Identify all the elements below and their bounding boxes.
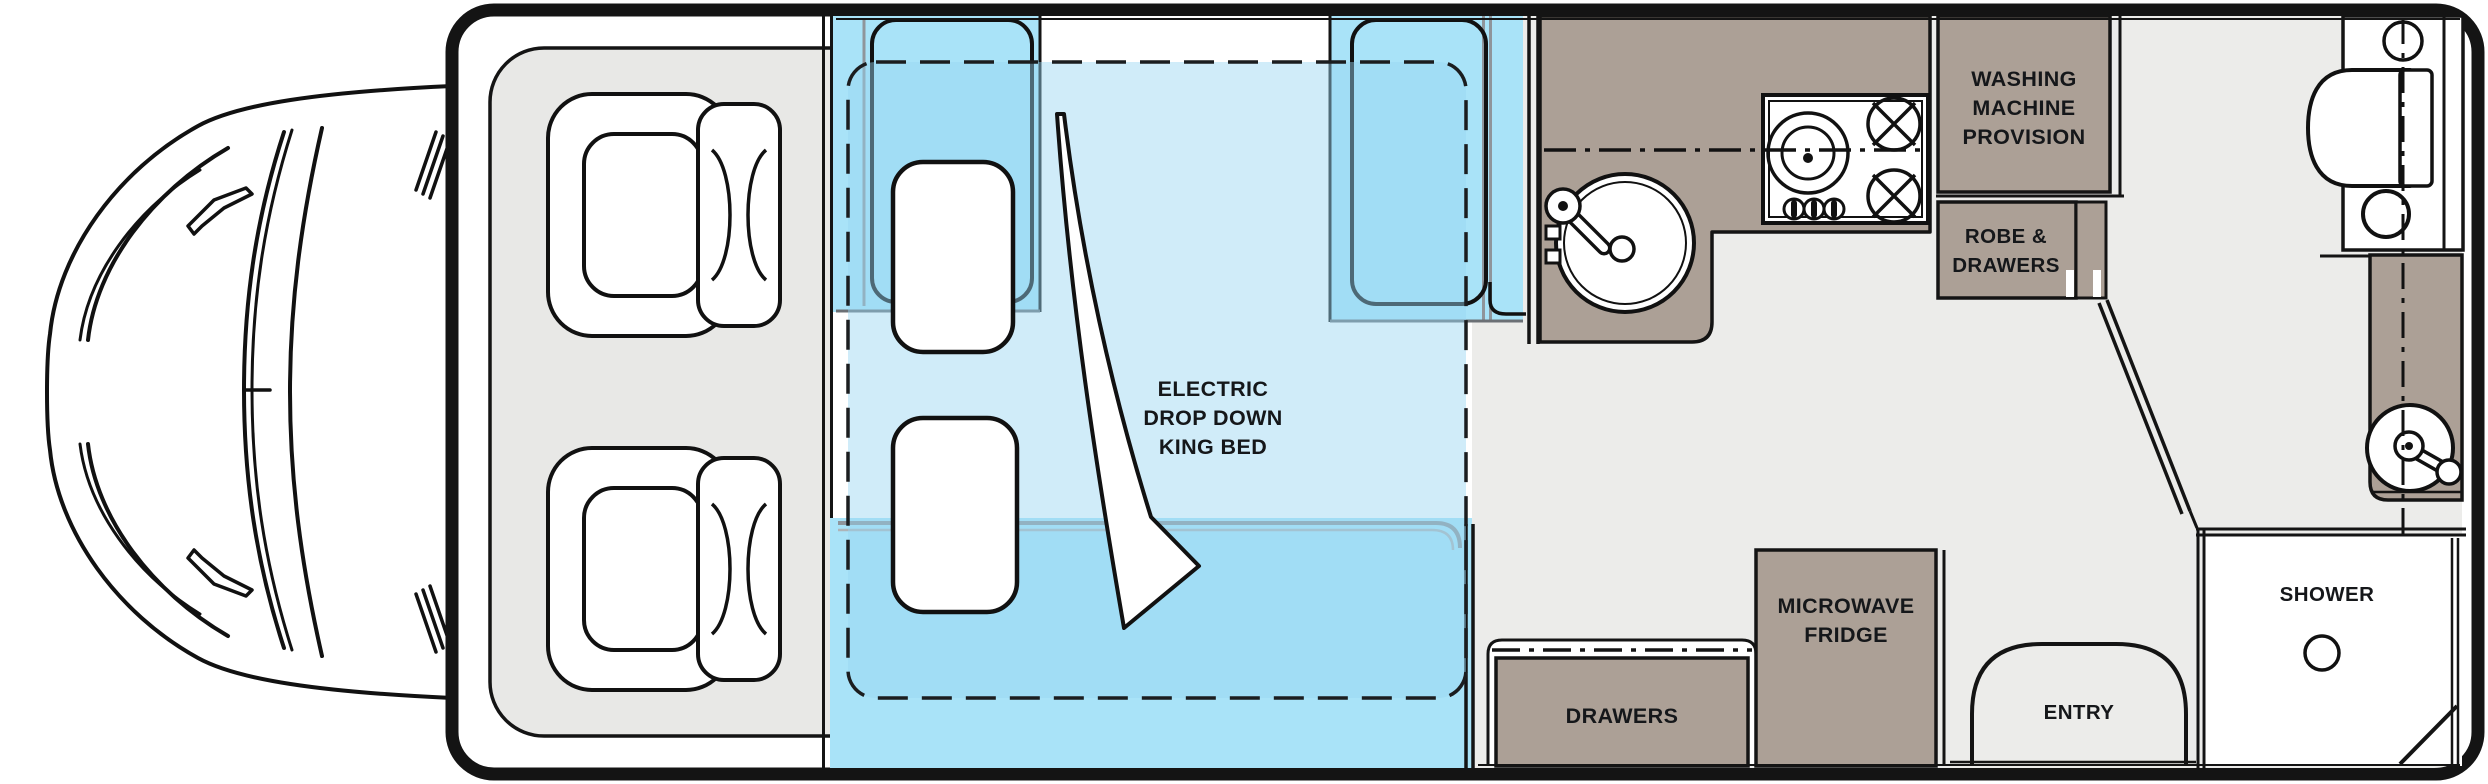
bed-label-line2: DROP DOWN	[1143, 406, 1282, 430]
shower-drain-icon	[2305, 636, 2339, 670]
bed-label-line1: ELECTRIC	[1158, 377, 1269, 401]
door-track-slot	[2066, 270, 2074, 297]
washing-label-line2: MACHINE	[1972, 96, 2075, 120]
robe-label-line2: DRAWERS	[1952, 254, 2060, 277]
vanity-unit	[2367, 255, 2462, 500]
toilet-bowl-icon	[2308, 70, 2410, 186]
microwave-label-line1: MICROWAVE	[1778, 594, 1915, 618]
bed-label-line3: KING BED	[1159, 435, 1267, 459]
tap-valve-icon	[1546, 250, 1560, 263]
floorplan-canvas: ELECTRIC DROP DOWN KING BED	[0, 0, 2488, 784]
door-track-slot	[2093, 270, 2101, 297]
robe-label-line1: ROBE &	[1965, 225, 2047, 248]
cooktop-knobs	[1784, 199, 1844, 219]
vanity-plug-icon	[2437, 460, 2461, 484]
cooktop	[1763, 95, 1928, 223]
table-front	[893, 162, 1013, 352]
entry-label: ENTRY	[2044, 701, 2115, 724]
microwave-fridge-cabinet	[1756, 550, 1944, 766]
toilet-cistern-icon	[2400, 70, 2432, 186]
sink-plug-icon	[1610, 237, 1634, 261]
microwave-label-line2: FRIDGE	[1804, 623, 1888, 647]
floorplan-svg: ELECTRIC DROP DOWN KING BED	[0, 0, 2488, 784]
driver-seat	[548, 94, 780, 336]
robe-cabinet	[1938, 202, 2106, 298]
washing-machine-label: WASHING MACHINE PROVISION	[1962, 67, 2085, 149]
drawers-cabinet	[1488, 640, 1756, 766]
shower-room	[2196, 529, 2466, 768]
passenger-seat	[548, 448, 780, 690]
washing-label-line3: PROVISION	[1962, 125, 2085, 149]
bed-label: ELECTRIC DROP DOWN KING BED	[1143, 377, 1282, 459]
washing-label-line1: WASHING	[1971, 67, 2077, 91]
drawers-label: DRAWERS	[1566, 704, 1679, 728]
tap-valve-icon	[1546, 226, 1560, 239]
table-rear	[893, 418, 1017, 612]
shower-label: SHOWER	[2280, 583, 2375, 606]
